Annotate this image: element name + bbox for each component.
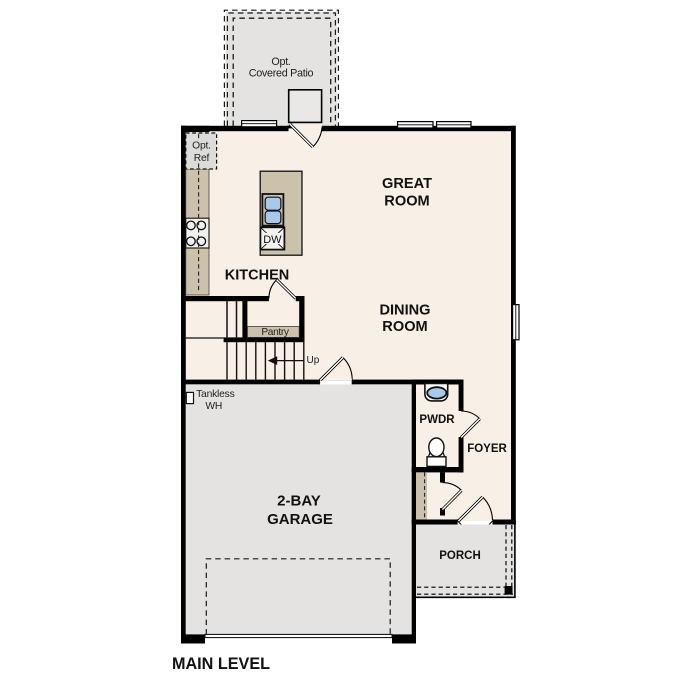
svg-text:MAIN LEVEL: MAIN LEVEL [172, 655, 270, 673]
svg-text:GREAT: GREAT [382, 176, 432, 192]
svg-text:Pantry: Pantry [261, 327, 290, 338]
svg-text:FOYER: FOYER [467, 443, 507, 455]
svg-text:WH: WH [205, 401, 222, 412]
svg-text:Ref: Ref [194, 153, 210, 164]
svg-text:DW: DW [263, 234, 282, 246]
svg-text:PORCH: PORCH [439, 550, 481, 562]
svg-text:ROOM: ROOM [382, 319, 427, 335]
svg-text:Opt.: Opt. [271, 56, 291, 68]
svg-text:ROOM: ROOM [384, 193, 429, 209]
svg-text:GARAGE: GARAGE [267, 511, 333, 528]
svg-text:Opt.: Opt. [192, 141, 211, 152]
svg-text:Up: Up [307, 355, 320, 366]
svg-text:DINING: DINING [379, 303, 430, 319]
svg-text:Covered Patio: Covered Patio [249, 67, 314, 79]
svg-text:Tankless: Tankless [196, 389, 235, 400]
svg-text:PWDR: PWDR [419, 414, 455, 426]
svg-text:2-BAY: 2-BAY [277, 493, 321, 510]
